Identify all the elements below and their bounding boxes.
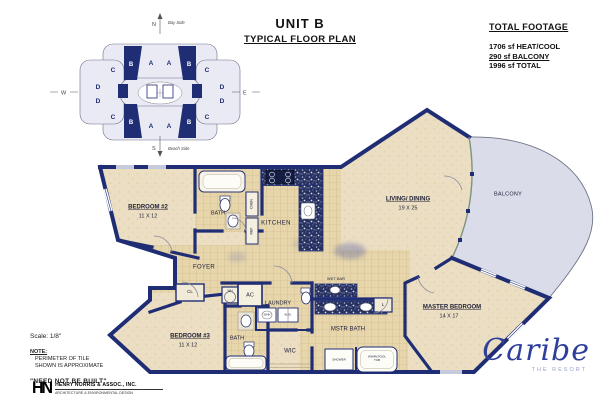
fixture-label-shower: SHOWER <box>332 358 346 361</box>
footage-heatcool: 1706 sf HEAT/COOL <box>489 42 568 52</box>
footage-balcony: 290 sf BALCONY <box>489 52 568 62</box>
footage-total: 1996 sf TOTAL <box>489 61 568 71</box>
compass-north: N <box>152 22 156 28</box>
unit-letter-b: B <box>129 120 134 126</box>
unit-letter-c: C <box>205 67 210 74</box>
sink-bath2 <box>228 215 238 227</box>
toilet-bath3 <box>244 345 254 357</box>
room-dims-bedroom3: 11 X 12 <box>179 342 198 348</box>
fixture-label-whirlpool: WHIRLPOOL TUB <box>366 356 388 363</box>
scale-note: Scale: 1/8" <box>30 333 107 340</box>
room-label-bath2: BATH <box>211 210 225 216</box>
room-label-bedroom3: BEDROOM #3 <box>170 333 210 340</box>
fixture-label-oven: OVEN <box>250 199 254 209</box>
fixture-label-linen: L <box>382 303 385 308</box>
room-label-kitchen: KITCHEN <box>261 220 291 227</box>
unit-letter-d: D <box>220 98 225 105</box>
room-dims-master: 14 X 17 <box>440 313 459 319</box>
total-footage-heading: TOTAL FOOTAGE <box>489 22 568 32</box>
room-dims-bedroom2: 11 X 12 <box>139 213 158 219</box>
page-subtitle: TYPICAL FLOOR PLAN <box>175 34 425 45</box>
architect-name: HENRY NORRIS & ASSOC., INC. <box>55 382 163 390</box>
note-heading: NOTE: <box>30 349 107 355</box>
room-label-bedroom2: BEDROOM #2 <box>128 204 168 211</box>
toilet-mstr <box>302 292 311 304</box>
room-label-laundry: LAUNDRY <box>265 300 291 306</box>
note-line-1: PERIMETER OF TILE <box>35 356 107 362</box>
room-label-wetbar: WET BAR <box>327 277 345 281</box>
room-label-bath3: BATH <box>230 335 244 341</box>
fixture-label-ac: AC <box>246 292 254 298</box>
unit-letter-d: D <box>96 98 101 105</box>
unit-letter-a: A <box>167 60 172 67</box>
beach-side-note: Beach Side <box>168 146 190 151</box>
brand-name: Caribe <box>480 336 590 366</box>
unit-letter-d: D <box>96 84 101 91</box>
brand-logo: Caribe THE RESORT <box>480 336 590 373</box>
compass-south: S <box>152 146 156 152</box>
compass-east: E <box>243 91 247 97</box>
room-label-living: LIVING/ DINING <box>386 196 430 203</box>
fixture-label-wh: WH <box>228 289 233 292</box>
note-line-2: SHOWN IS APPROXIMATE <box>35 363 107 369</box>
total-footage-block: TOTAL FOOTAGE 1706 sf HEAT/COOL 290 sf B… <box>489 22 568 71</box>
title-block: UNIT B TYPICAL FLOOR PLAN <box>175 16 425 45</box>
fixture-label-wd: W./D. <box>284 313 291 316</box>
fixture-label-ref: REF <box>250 228 254 235</box>
room-dims-living: 19 X 25 <box>399 205 418 211</box>
room-label-master: MASTER BEDROOM <box>423 304 481 311</box>
room-label-mstrbath: MSTR BATH <box>331 326 365 333</box>
unit-letter-a: A <box>167 123 172 130</box>
unit-letter-a: A <box>149 60 154 67</box>
architect-monogram: HN <box>32 380 51 399</box>
architect-tagline: ARCHITECTURE & ENVIRONMENTAL DESIGN <box>55 391 133 395</box>
room-label-balcony: BALCONY <box>494 191 522 197</box>
page-title: UNIT B <box>175 16 425 31</box>
room-label-wic: WIC <box>284 348 296 355</box>
fixture-label-sink: SINK <box>263 313 270 316</box>
architect-logo: HN HENRY NORRIS & ASSOC., INC. ARCHITECT… <box>32 380 163 398</box>
floor-plan-sheet: A A A A C C C C D D D D B B B B <box>0 0 600 413</box>
unit-letter-b: B <box>187 120 192 126</box>
unit-letter-a: A <box>149 123 154 130</box>
unit-letter-c: C <box>205 114 210 121</box>
unit-letter-c: C <box>111 67 116 74</box>
unit-letter-d: D <box>220 84 225 91</box>
notes-block: Scale: 1/8" NOTE: PERIMETER OF TILE SHOW… <box>30 333 107 385</box>
kitchen-sink <box>301 203 315 219</box>
unit-letter-c: C <box>111 114 116 121</box>
fixture-label-cl: CL <box>187 290 193 295</box>
compass-west: W <box>61 91 67 97</box>
sink-bath3 <box>241 315 251 327</box>
unit-letter-b: B <box>129 62 134 68</box>
room-label-foyer: FOYER <box>193 264 215 271</box>
unit-letter-b: B <box>187 62 192 68</box>
